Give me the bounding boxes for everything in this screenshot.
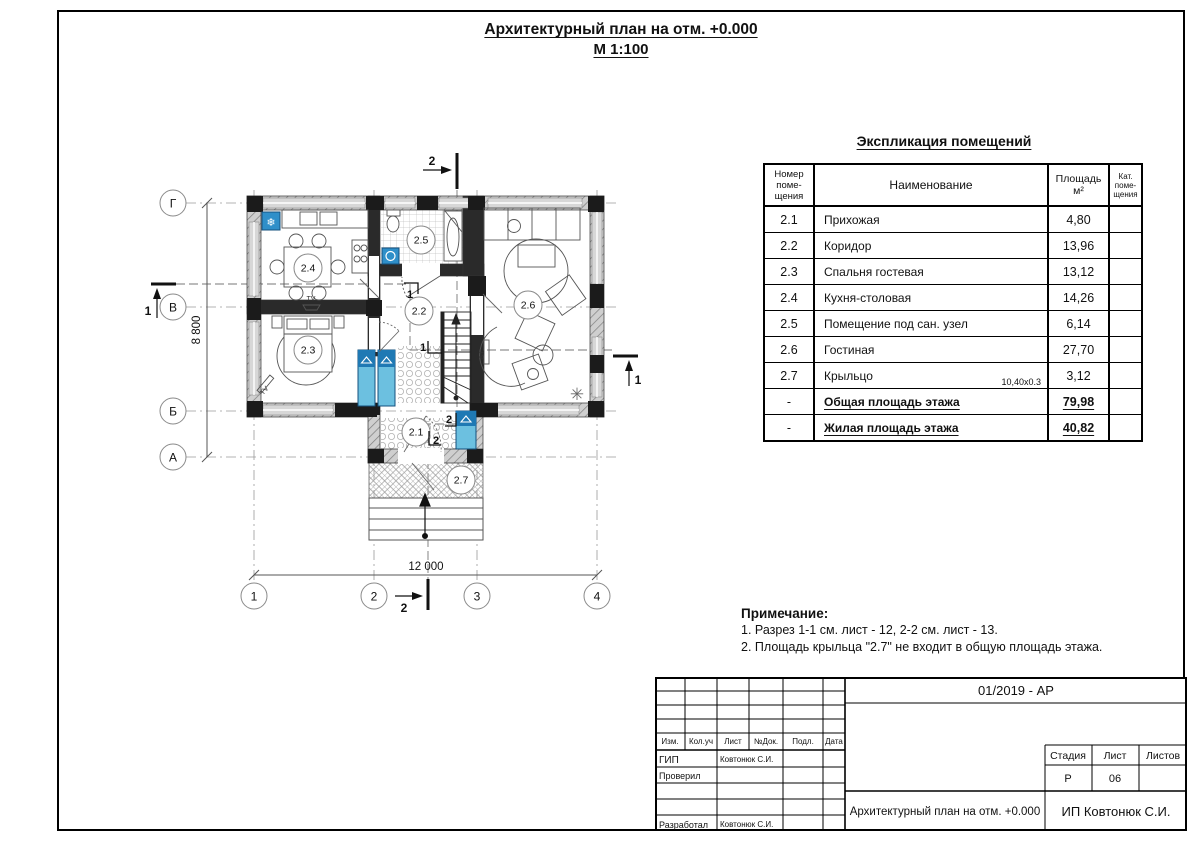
cell-name-note: 10,40x0.3 — [1001, 377, 1041, 387]
cell-room-name: Общая площадь этажа — [814, 389, 1048, 415]
axis-marker: 2 — [361, 583, 387, 609]
axis-marker: В — [160, 294, 186, 320]
svg-text:2.6: 2.6 — [521, 300, 536, 312]
svg-text:TV: TV — [477, 351, 484, 360]
cell-area: 4,80 — [1048, 206, 1109, 233]
axis-marker: 1 — [241, 583, 267, 609]
cell-area: 13,12 — [1048, 259, 1109, 285]
floor-plan: ❄ — [135, 140, 660, 620]
fridge-icon: ❄ — [262, 212, 280, 230]
doc-number: 01/2019 - АР — [978, 683, 1054, 698]
cell-room-name: Гостиная — [814, 337, 1048, 363]
cell-room-name: Жилая площадь этажа — [814, 415, 1048, 442]
svg-text:2: 2 — [429, 154, 436, 168]
svg-text:2: 2 — [433, 435, 439, 447]
sheet-value: 06 — [1109, 773, 1121, 785]
note-item: 1. Разрез 1-1 см. лист - 12, 2-2 см. лис… — [741, 622, 1161, 638]
cell-category — [1109, 233, 1142, 259]
axis-marker: Б — [160, 398, 186, 424]
role-label: Разработал — [659, 820, 708, 830]
cell-room-number: 2.3 — [764, 259, 814, 285]
explication-title: Экспликация помещений — [763, 133, 1125, 149]
cell-room-number: 2.4 — [764, 285, 814, 311]
cell-category — [1109, 285, 1142, 311]
cell-room-number: - — [764, 415, 814, 442]
sheet-title-line1: Архитектурный план на отм. +0.000 — [57, 21, 1185, 39]
svg-text:❄: ❄ — [266, 217, 275, 229]
table-row: 2.1Прихожая4,80 — [764, 206, 1142, 233]
explication-rows: 2.1Прихожая4,802.2Коридор13,962.3Спальня… — [764, 206, 1142, 441]
wardrobe-icon — [456, 411, 476, 449]
room-label: 2.7 — [447, 466, 475, 494]
svg-text:1: 1 — [145, 304, 152, 318]
role-label: Проверил — [659, 771, 700, 781]
drawing-title: Архитектурный план на отм. +0.000 — [850, 806, 1040, 818]
role-name: Ковтонюк С.И. — [720, 755, 773, 764]
col-header-category: Кат. поме- щения — [1109, 164, 1142, 206]
table-row: -Жилая площадь этажа40,82 — [764, 415, 1142, 442]
svg-text:Дата: Дата — [825, 737, 843, 746]
cell-category — [1109, 206, 1142, 233]
cell-room-number: 2.2 — [764, 233, 814, 259]
table-row: -Общая площадь этажа79,98 — [764, 389, 1142, 415]
svg-text:3: 3 — [474, 590, 481, 604]
role-name: Ковтонюк С.И. — [720, 820, 773, 829]
svg-text:1: 1 — [251, 590, 258, 604]
svg-text:А: А — [169, 451, 177, 465]
room-label: 2.2 — [405, 297, 433, 325]
cell-room-name: Кухня-столовая — [814, 285, 1048, 311]
axis-marker: 3 — [464, 583, 490, 609]
cell-room-name: Спальня гостевая — [814, 259, 1048, 285]
cell-area: 13,96 — [1048, 233, 1109, 259]
axis-marker: Г — [160, 190, 186, 216]
wardrobe-icon — [378, 350, 395, 406]
explication-table: Номер поме- щения Наименование Площадь м… — [763, 163, 1143, 442]
svg-text:Лист: Лист — [724, 737, 742, 746]
table-row: 2.4Кухня-столовая14,26 — [764, 285, 1142, 311]
cell-room-name: Прихожая — [814, 206, 1048, 233]
stage-value: Р — [1064, 773, 1071, 785]
cell-category — [1109, 389, 1142, 415]
table-row: 2.5Помещение под сан. узел6,14 — [764, 311, 1142, 337]
cell-area: 6,14 — [1048, 311, 1109, 337]
svg-text:4: 4 — [594, 590, 601, 604]
cell-room-name: Крыльцо10,40x0.3 — [814, 363, 1048, 389]
cell-area: 14,26 — [1048, 285, 1109, 311]
svg-text:2.7: 2.7 — [454, 475, 469, 487]
dim-height-label: 8 800 — [191, 316, 203, 345]
table-row: 2.7Крыльцо10,40x0.33,12 — [764, 363, 1142, 389]
svg-text:2.2: 2.2 — [412, 306, 427, 318]
cell-category — [1109, 363, 1142, 389]
sheet-title-scale: М 1:100 — [57, 41, 1185, 58]
room-label: 2.3 — [294, 336, 322, 364]
svg-text:2.5: 2.5 — [414, 235, 429, 247]
cell-room-number: - — [764, 389, 814, 415]
cell-area: 3,12 — [1048, 363, 1109, 389]
axis-marker: 4 — [584, 583, 610, 609]
cell-room-number: 2.5 — [764, 311, 814, 337]
cell-category — [1109, 311, 1142, 337]
washing-machine-icon — [382, 248, 399, 264]
role-label: ГИП — [659, 755, 679, 766]
svg-text:1: 1 — [635, 373, 642, 387]
notes-title: Примечание: — [741, 606, 1161, 621]
room-label: 2.1 — [402, 418, 430, 446]
col-header-area: Площадь м² — [1048, 164, 1109, 206]
staircase — [441, 312, 471, 403]
cell-category — [1109, 415, 1142, 442]
room-label: 2.6 — [514, 291, 542, 319]
title-block: Изм. Кол.уч Лист №Док. Подл. Дата ГИП Ко… — [655, 677, 1187, 831]
svg-text:1: 1 — [407, 289, 413, 301]
cell-area: 40,82 — [1048, 415, 1109, 442]
cell-room-name: Помещение под сан. узел — [814, 311, 1048, 337]
cell-category — [1109, 337, 1142, 363]
svg-text:1: 1 — [420, 342, 426, 354]
svg-text:Листов: Листов — [1146, 750, 1181, 762]
svg-text:Лист: Лист — [1104, 750, 1127, 762]
svg-text:2.1: 2.1 — [409, 427, 424, 439]
svg-text:TV: TV — [307, 296, 316, 303]
svg-text:2: 2 — [371, 590, 378, 604]
stage-sheet-headers: Стадия Лист Листов — [1050, 750, 1180, 762]
cell-area: 27,70 — [1048, 337, 1109, 363]
wardrobe-icon — [358, 350, 375, 406]
room-label: 2.5 — [407, 226, 435, 254]
svg-text:Г: Г — [170, 197, 177, 211]
dim-width-label: 12 000 — [408, 561, 443, 573]
plant-icon: ✳ — [570, 385, 584, 404]
corridor-floor — [398, 346, 442, 403]
axis-marker: А — [160, 444, 186, 470]
svg-text:2.3: 2.3 — [301, 345, 316, 357]
svg-text:В: В — [169, 301, 177, 315]
cell-category — [1109, 259, 1142, 285]
col-header-number: Номер поме- щения — [764, 164, 814, 206]
cell-room-number: 2.7 — [764, 363, 814, 389]
room-label: 2.4 — [294, 254, 322, 282]
cell-room-name: Коридор — [814, 233, 1048, 259]
svg-text:Стадия: Стадия — [1050, 750, 1086, 762]
notes-block: Примечание: 1. Разрез 1-1 см. лист - 12,… — [741, 606, 1161, 655]
svg-text:Подл.: Подл. — [792, 737, 814, 746]
col-header-name: Наименование — [814, 164, 1048, 206]
note-item: 2. Площадь крыльца "2.7" не входит в общ… — [741, 639, 1161, 655]
svg-text:Изм.: Изм. — [661, 737, 678, 746]
table-row: 2.3Спальня гостевая13,12 — [764, 259, 1142, 285]
table-row: 2.6Гостиная27,70 — [764, 337, 1142, 363]
cell-area: 79,98 — [1048, 389, 1109, 415]
svg-text:№Док.: №Док. — [754, 737, 778, 746]
sheet-title: Архитектурный план на отм. +0.000 М 1:10… — [57, 21, 1185, 58]
cell-room-number: 2.6 — [764, 337, 814, 363]
cell-room-number: 2.1 — [764, 206, 814, 233]
svg-text:Б: Б — [169, 405, 177, 419]
svg-text:2: 2 — [401, 601, 408, 615]
svg-text:2.4: 2.4 — [301, 263, 316, 275]
svg-text:Кол.уч: Кол.уч — [689, 737, 713, 746]
company-name: ИП Ковтонюк С.И. — [1062, 804, 1171, 819]
svg-text:2: 2 — [446, 414, 452, 426]
table-row: 2.2Коридор13,96 — [764, 233, 1142, 259]
